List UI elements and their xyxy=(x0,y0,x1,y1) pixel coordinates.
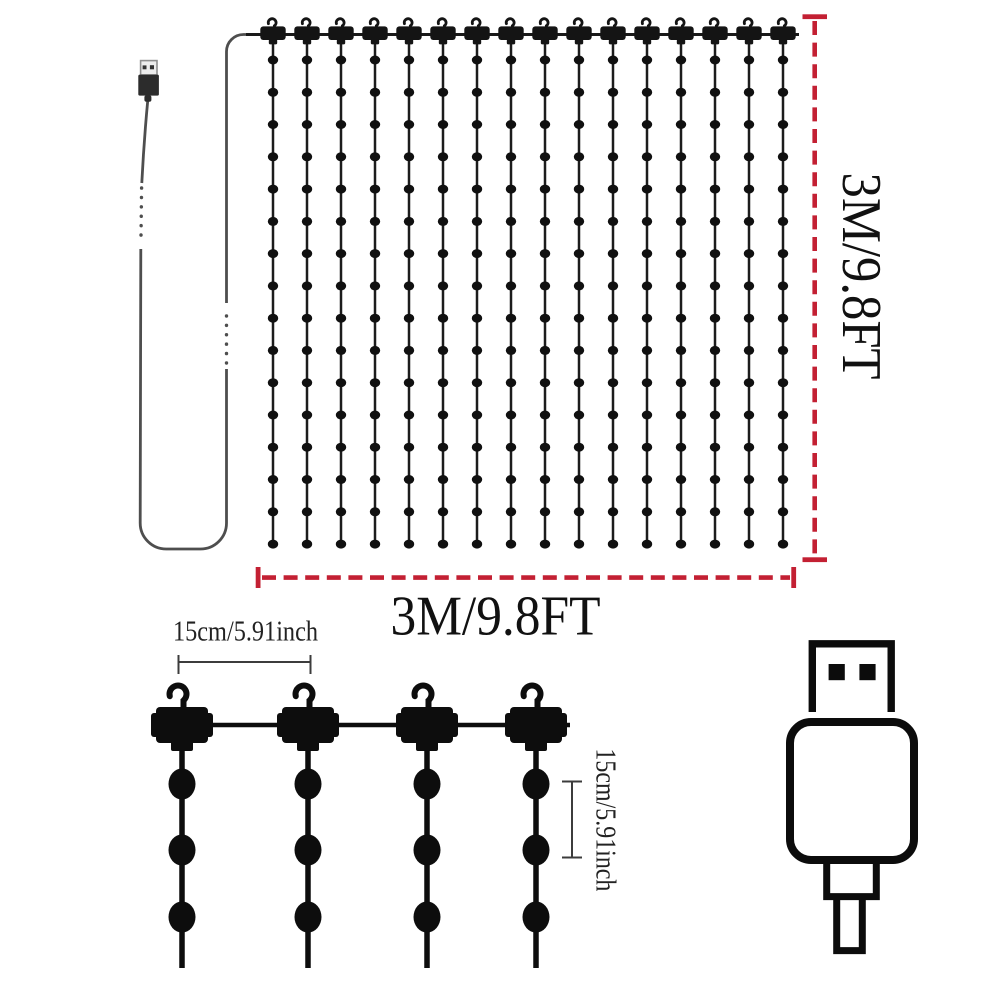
svg-text:15cm/5.91inch: 15cm/5.91inch xyxy=(590,748,622,891)
svg-text:15cm/5.91inch: 15cm/5.91inch xyxy=(173,616,318,648)
svg-text:3M/9.8FT: 3M/9.8FT xyxy=(830,173,892,380)
svg-text:3M/9.8FT: 3M/9.8FT xyxy=(391,586,601,648)
